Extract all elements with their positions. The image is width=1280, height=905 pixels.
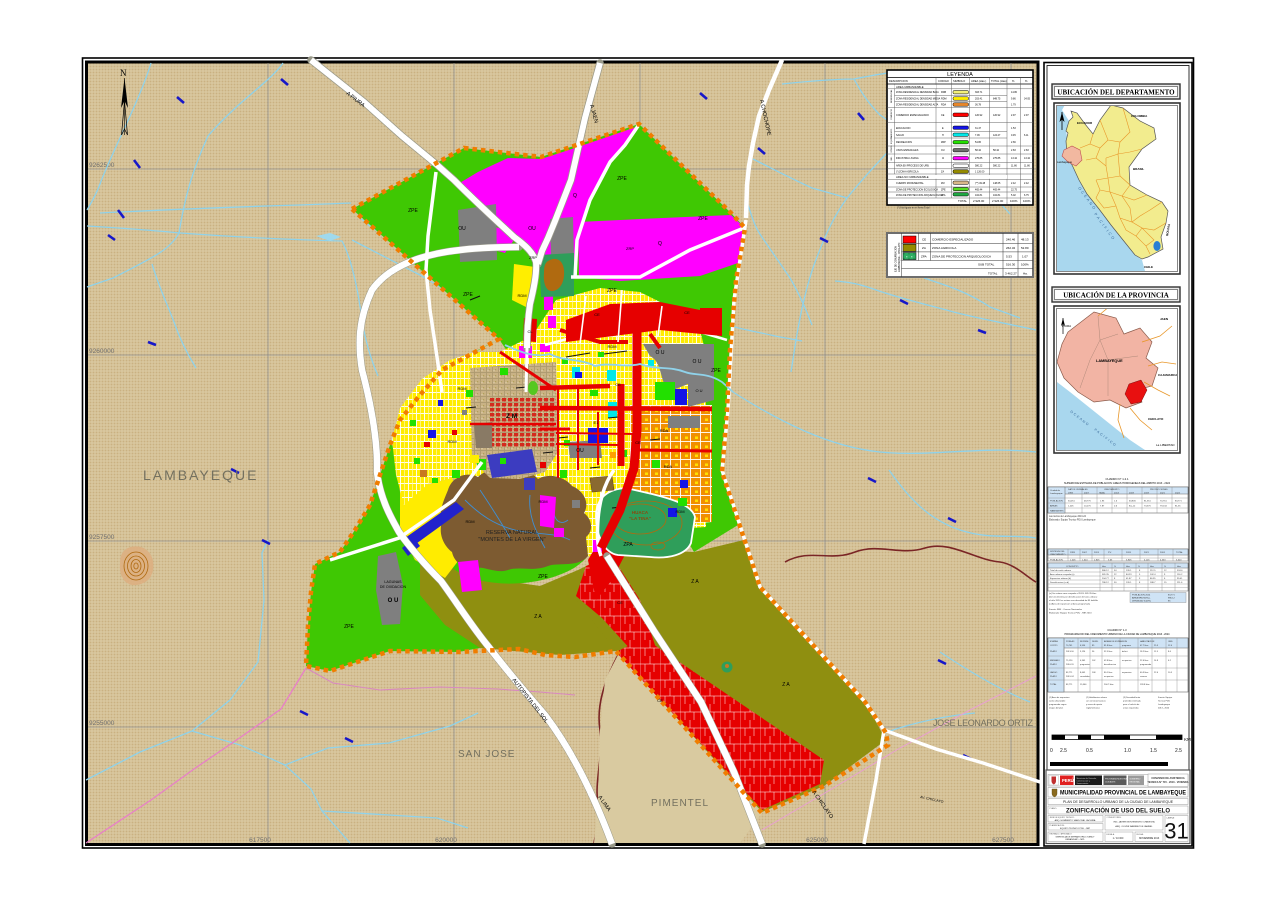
svg-text:POBLACION 2024: POBLACION 2024	[1132, 594, 1151, 597]
svg-text:1 / 10 000: 1 / 10 000	[1113, 837, 1124, 840]
svg-text:ZPE: ZPE	[617, 176, 627, 182]
svg-text:9255000: 9255000	[89, 720, 115, 727]
svg-text:CE: CE	[635, 440, 641, 445]
svg-text:Las tierras de Lambayeque 2013: Las tierras de Lambayeque 2013-24	[1049, 515, 1087, 518]
svg-text:ZPE: ZPE	[607, 288, 617, 294]
svg-text:EDUCACION: EDUCACION	[896, 127, 911, 130]
svg-text:86.35: 86.35	[1150, 578, 1156, 580]
svg-text:DENSIDAD hab/Ha: DENSIDAD hab/Ha	[1132, 600, 1152, 603]
svg-text:1.5: 1.5	[1150, 748, 1157, 754]
svg-text:8,645: 8,645	[1080, 672, 1086, 674]
svg-text:IND.: IND.	[891, 156, 893, 160]
svg-text:COMERCIO: COMERCIO	[891, 109, 893, 120]
svg-text:ZRP: ZRP	[529, 255, 537, 260]
svg-text:%: %	[1138, 566, 1140, 568]
svg-text:Elaborado: Equipo Tecnico PDU: Elaborado: Equipo Tecnico PDU Lambayeque	[1049, 519, 1096, 522]
svg-text:Saneamiento: Saneamiento	[1077, 782, 1090, 785]
svg-text:848.75: 848.75	[993, 97, 1001, 100]
svg-text:CONCEPTO: CONCEPTO	[1066, 566, 1079, 568]
svg-text:AREAS DE EXPANSION: AREAS DE EXPANSION	[1104, 640, 1128, 643]
svg-text:Lambayeque: Lambayeque	[1057, 160, 1073, 164]
svg-text:CUADRO N° 1.3: CUADRO N° 1.3	[1107, 628, 1127, 632]
svg-text:INDUSTRIA LIVIANA: INDUSTRIA LIVIANA	[896, 157, 919, 160]
svg-text:Area urbana ocupada (a): Area urbana ocupada (a)	[1050, 573, 1075, 576]
svg-text:Z A: Z A	[782, 682, 790, 688]
svg-text:ocupacion: ocupacion	[1104, 676, 1114, 678]
svg-text:ESCALA:: ESCALA:	[1107, 833, 1115, 836]
svg-text:RDA: RDA	[664, 464, 673, 469]
svg-text:CUERPO MONUMENTAL: CUERPO MONUMENTAL	[896, 182, 924, 185]
svg-text:102.81: 102.81	[975, 194, 983, 197]
svg-text:LAMBAYEQUE: LAMBAYEQUE	[143, 467, 258, 483]
svg-text:Fuente: Equipo: Fuente: Equipo	[1158, 696, 1173, 699]
svg-text:2.97: 2.97	[1024, 114, 1029, 117]
svg-text:(3) Densidad bruta: (3) Densidad bruta	[1123, 696, 1141, 699]
svg-text:SUPERFICIE ESTIMADA DE POBLACI: SUPERFICIE ESTIMADA DE POBLACION: AREAS …	[1064, 482, 1171, 485]
svg-text:SINTESIS DEL: SINTESIS DEL	[1050, 551, 1066, 553]
svg-text:OU: OU	[941, 149, 945, 152]
svg-text:PLANIFICACION:: PLANIFICACION:	[1050, 824, 1065, 827]
svg-text:E1: E1	[594, 420, 600, 425]
svg-text:programa: programa	[1122, 644, 1132, 647]
svg-text:CHICLAYO: CHICLAYO	[1148, 417, 1164, 421]
svg-text:9257500: 9257500	[89, 534, 115, 541]
svg-text:ZPE: ZPE	[408, 208, 418, 214]
svg-text:2013: 2013	[1094, 552, 1100, 554]
svg-text:1,205: 1,205	[1068, 506, 1074, 508]
svg-text:N: N	[120, 68, 127, 78]
svg-text:CE: CE	[617, 600, 623, 605]
svg-text:2019: 2019	[1144, 493, 1150, 495]
svg-text:(**) 49.48: (**) 49.48	[975, 182, 986, 185]
svg-text:expansion: expansion	[1122, 672, 1132, 674]
svg-text:CONVENIO DE ASISTENCIA: CONVENIO DE ASISTENCIA	[1151, 777, 1184, 780]
svg-text:4,563: 4,563	[1160, 560, 1166, 562]
svg-text:620000: 620000	[435, 837, 457, 844]
svg-text:5,520: 5,520	[1176, 560, 1182, 562]
svg-text:PLAZO: PLAZO	[1050, 650, 1057, 653]
svg-text:1.07: 1.07	[1022, 254, 1028, 258]
svg-text:80.1 Has: 80.1 Has	[1104, 672, 1112, 674]
svg-text:58.42: 58.42	[975, 149, 982, 152]
svg-text:USOS ESPECIALES: USOS ESPECIALES	[896, 149, 919, 152]
svg-text:Expansion urbana (b): Expansion urbana (b)	[1050, 577, 1071, 580]
svg-text:O U: O U	[695, 388, 702, 393]
svg-text:580.22: 580.22	[975, 165, 983, 168]
svg-text:CE: CE	[594, 312, 600, 317]
svg-text:75,126: 75,126	[1066, 660, 1073, 662]
svg-text:148.65: 148.65	[993, 182, 1001, 185]
svg-text:La LIBERTAD: La LIBERTAD	[1156, 443, 1175, 447]
svg-text:47.7 Has: 47.7 Has	[1140, 645, 1148, 647]
svg-text:83,771: 83,771	[1066, 672, 1073, 674]
svg-text:7.06: 7.06	[975, 134, 980, 137]
svg-text:63,805: 63,805	[1129, 501, 1136, 503]
svg-text:1.53: 1.53	[1011, 127, 1016, 130]
svg-text:PERÚ: PERÚ	[1062, 778, 1074, 783]
svg-text:5.53: 5.53	[1006, 254, 1012, 258]
svg-text:ZPE: ZPE	[344, 624, 354, 630]
svg-text:RESERVA NATURAL: RESERVA NATURAL	[486, 530, 538, 536]
svg-text:%: %	[1114, 566, 1116, 568]
svg-text:70,761: 70,761	[1066, 645, 1073, 647]
svg-text:2024: 2024	[1160, 552, 1166, 554]
svg-text:Z A: Z A	[534, 614, 542, 620]
svg-text:Q: Q	[658, 241, 662, 247]
svg-text:RDM: RDM	[457, 386, 466, 391]
svg-text:100%: 100%	[1021, 263, 1029, 267]
svg-text:84,-12: 84,-12	[1129, 506, 1136, 508]
svg-text:2019-24: 2019-24	[1066, 676, 1074, 678]
svg-text:0.5: 0.5	[1086, 748, 1093, 754]
svg-text:REGIONAL: REGIONAL	[1130, 781, 1141, 784]
svg-text:DESCRIPCION: DESCRIPCION	[889, 79, 908, 83]
svg-text:P.V.: P.V.	[1108, 552, 1112, 554]
svg-text:102.81: 102.81	[993, 194, 1001, 197]
svg-text:2007: 2007	[1084, 493, 1090, 495]
svg-text:2.5: 2.5	[1175, 748, 1182, 754]
svg-text:73,375: 73,375	[1144, 506, 1151, 508]
svg-text:2,805: 2,805	[1094, 560, 1100, 562]
svg-text:1,624: 1,624	[1082, 560, 1088, 562]
svg-text:48.13: 48.13	[1021, 238, 1029, 242]
svg-text:2019: 2019	[1126, 552, 1132, 554]
svg-text:ZPE: ZPE	[941, 188, 946, 191]
svg-text:Fuente: INEI - Censos Nacional: Fuente: INEI - Censos Nacionales	[1049, 608, 1083, 611]
svg-text:UBICACIÓN DE LA PROVINCIA: UBICACIÓN DE LA PROVINCIA	[1063, 292, 1169, 300]
svg-text:22.75: 22.75	[1011, 188, 1018, 191]
svg-text:CE: CE	[922, 238, 926, 242]
svg-text:KM: KM	[1184, 737, 1191, 742]
svg-text:programada: programada	[1140, 663, 1152, 666]
svg-text:densificacion: densificacion	[1104, 664, 1117, 666]
svg-text:ZRP: ZRP	[941, 141, 946, 144]
svg-text:etapas del plan: etapas del plan	[1049, 707, 1064, 710]
svg-text:RDM: RDM	[675, 509, 684, 514]
svg-text:42.8 Has: 42.8 Has	[1104, 660, 1112, 662]
svg-text:PROYECCIONES: PROYECCIONES	[1150, 489, 1168, 491]
svg-text:5.02: 5.02	[1011, 194, 1016, 197]
svg-text:ZONA RESIDENCIAL DENSIDAD BAJA: ZONA RESIDENCIAL DENSIDAD BAJA	[896, 91, 939, 94]
svg-text:ZPE: ZPE	[711, 368, 721, 374]
svg-text:9.86: 9.86	[1011, 97, 1016, 100]
svg-text:RDM: RDM	[517, 293, 526, 298]
svg-text:2013 - 2024: 2013 - 2024	[1158, 708, 1170, 710]
svg-text:4,365: 4,365	[1080, 660, 1086, 662]
svg-text:240.46: 240.46	[1006, 238, 1016, 242]
svg-text:suelo urbanizable: suelo urbanizable	[1049, 700, 1066, 703]
svg-text:1,006: 1,006	[1070, 560, 1076, 562]
svg-text:126.1: 126.1	[1126, 570, 1132, 572]
svg-text:3,126: 3,126	[1080, 651, 1086, 653]
svg-text:2.97: 2.97	[1011, 114, 1016, 117]
svg-text:54.86: 54.86	[975, 141, 982, 144]
svg-text:CODIGO: CODIGO	[938, 79, 949, 83]
svg-text:126.1: 126.1	[1126, 582, 1132, 584]
svg-text:2 926.00: 2 926.00	[973, 199, 985, 203]
svg-text:LEYENDA: LEYENDA	[947, 72, 973, 78]
svg-text:AREA EN PROCESO DE URB.: AREA EN PROCESO DE URB.	[896, 165, 930, 168]
svg-text:Z A: Z A	[691, 579, 699, 585]
svg-text:32.5 Has: 32.5 Has	[1104, 651, 1112, 653]
svg-text:TOTAL: TOTAL	[1176, 551, 1184, 554]
svg-text:SAN JOSE: SAN JOSE	[458, 749, 515, 760]
svg-text:AREA URBANIZABLE: AREA URBANIZABLE	[896, 85, 924, 89]
svg-text:2016-19: 2016-19	[1066, 664, 1074, 666]
svg-text:100%: 100%	[1023, 199, 1031, 203]
svg-text:COMERCIO ESPECIALIZADO: COMERCIO ESPECIALIZADO	[896, 114, 929, 117]
svg-text:SALUD: SALUD	[896, 134, 904, 137]
svg-text:124.27: 124.27	[993, 134, 1001, 137]
svg-text:ZONA RESIDENCIAL DENSIDAD MEDI: ZONA RESIDENCIAL DENSIDAD MEDIA	[896, 97, 941, 100]
svg-text:TASA: TASA	[1099, 492, 1105, 495]
svg-text:13.42: 13.42	[1024, 157, 1031, 160]
svg-text:POBLACION: POBLACION	[1050, 500, 1063, 503]
svg-text:11.86: 11.86	[1011, 165, 1017, 168]
svg-text:COMERCIO ESPECIALIZADO: COMERCIO ESPECIALIZADO	[932, 238, 974, 242]
svg-text:OU: OU	[528, 226, 536, 232]
svg-text:83,771: 83,771	[1168, 595, 1175, 597]
svg-text:Densificacion (a+b): Densificacion (a+b)	[1050, 582, 1069, 584]
svg-text:CRECIMIENTO: CRECIMIENTO	[1050, 554, 1066, 556]
svg-text:JEFE DE EQUIPO TECNICO:: JEFE DE EQUIPO TECNICO:	[1050, 817, 1076, 819]
svg-text:211.6: 211.6	[1177, 582, 1183, 584]
svg-text:BRASIL: BRASIL	[1133, 167, 1144, 171]
svg-text:AREA (Has.): AREA (Has.)	[971, 79, 986, 83]
svg-text:OBS.: OBS.	[1168, 641, 1173, 643]
svg-text:RDM: RDM	[941, 97, 946, 100]
svg-text:303.71: 303.71	[975, 91, 983, 94]
svg-text:ZPE: ZPE	[463, 292, 473, 298]
svg-text:RESIDENCIAL: RESIDENCIAL	[890, 89, 893, 103]
svg-text:COLOMBIA: COLOMBIA	[1131, 114, 1148, 118]
svg-text:Tecnico PDU: Tecnico PDU	[1158, 701, 1171, 703]
svg-text:GOBIERNO: GOBIERNO	[1130, 779, 1141, 781]
svg-text:SIMBOLO: SIMBOLO	[953, 79, 965, 83]
svg-text:RDM: RDM	[538, 499, 547, 504]
svg-text:ZONA DE PROTECCION ARQUEOLOG: ZONA DE PROTECCION ARQUEOLOGICA	[932, 254, 991, 258]
svg-text:OU: OU	[458, 226, 466, 232]
svg-text:1.79: 1.79	[1011, 104, 1016, 107]
svg-text:HABITANTES: HABITANTES	[1050, 510, 1064, 513]
svg-text:TOTAL: TOTAL	[1050, 683, 1057, 686]
svg-text:"LA TINA": "LA TINA"	[629, 516, 651, 521]
svg-text:"MONTES DE LA VIRGEN": "MONTES DE LA VIRGEN"	[478, 537, 545, 543]
svg-text:2.66: 2.66	[1011, 141, 1016, 144]
svg-text:6.75: 6.75	[1024, 194, 1029, 197]
svg-text:CHILE: CHILE	[1144, 265, 1153, 269]
svg-text:465.44: 465.44	[993, 188, 1001, 191]
svg-text:TECNICA N° 715 - 2013 - VIVIEN: TECNICA N° 715 - 2013 - VIVIENDA	[1147, 781, 1188, 784]
svg-text:UBICACIÓN DEL DEPARTAMENTO: UBICACIÓN DEL DEPARTAMENTO	[1057, 89, 1175, 97]
svg-text:O U: O U	[656, 350, 665, 356]
svg-text:CE: CE	[941, 114, 945, 117]
svg-text:O U: O U	[693, 359, 702, 365]
svg-text:OU: OU	[576, 448, 584, 454]
svg-text:ZPA: ZPA	[623, 542, 633, 548]
svg-text:2013-16: 2013-16	[1066, 651, 1074, 653]
svg-text:262.32: 262.32	[1006, 246, 1016, 250]
svg-text:RECREACION: RECREACION	[896, 141, 912, 144]
svg-text:ZRP: ZRP	[626, 246, 634, 251]
svg-text:CE: CE	[615, 382, 621, 387]
svg-text:2024: 2024	[1175, 493, 1181, 495]
svg-text:465.44: 465.44	[975, 188, 983, 191]
svg-text:CRECIMIENTO: CRECIMIENTO	[1104, 489, 1120, 491]
svg-text:LAMBAYEQUE: LAMBAYEQUE	[1096, 359, 1123, 363]
svg-text:MEDIANO: MEDIANO	[1050, 659, 1060, 662]
svg-text:6,956: 6,956	[1080, 645, 1086, 647]
svg-text:promedio estimada: promedio estimada	[1123, 700, 1142, 703]
svg-text:RDM: RDM	[447, 439, 456, 444]
svg-text:18.2 Has: 18.2 Has	[1140, 651, 1148, 653]
svg-text:9262500: 9262500	[89, 162, 115, 169]
svg-text:79,134: 79,134	[1160, 506, 1167, 508]
svg-text:2019: 2019	[1129, 493, 1135, 495]
svg-text:programado segun: programado segun	[1049, 703, 1067, 706]
svg-text:ZA: ZA	[922, 246, 926, 250]
svg-text:ARQ. HUMBERTO SANDOVAL LACHIRA: ARQ. HUMBERTO SANDOVAL LACHIRA	[1055, 819, 1096, 822]
svg-text:786.12: 786.12	[1102, 582, 1109, 584]
svg-text:POBLACION: POBLACION	[1050, 559, 1063, 562]
svg-text:EQUIPO TECNICO PDU - PAT: EQUIPO TECNICO PDU - PAT	[1060, 827, 1091, 830]
svg-text:NOVIEMBRE 2013: NOVIEMBRE 2013	[1139, 837, 1160, 840]
svg-text:areas requeridas: areas requeridas	[1123, 707, 1139, 710]
svg-text:128.8 Has: 128.8 Has	[1140, 684, 1149, 686]
svg-text:REVISADO / APROBADO:: REVISADO / APROBADO:	[1050, 833, 1073, 836]
svg-text:0: 0	[1050, 748, 1053, 754]
svg-text:ING. JAVIER MONTENEGRO CHAVEST: ING. JAVIER MONTENEGRO CHAVESTA	[1113, 821, 1155, 824]
svg-text:617500: 617500	[249, 837, 271, 844]
svg-text:AREA NO URBANIZABLE: AREA NO URBANIZABLE	[896, 175, 929, 179]
svg-text:ARQ. OLIVER RAMIREZ DE JAMBEL: ARQ. OLIVER RAMIREZ DE JAMBEL	[1115, 825, 1153, 828]
svg-text:204.7 Has: 204.7 Has	[1104, 684, 1113, 686]
svg-text:(c) Area de expansion urbana p: (c) Area de expansion urbana programada	[1049, 603, 1091, 606]
svg-text:9260000: 9260000	[89, 348, 115, 355]
svg-text:ZPA: ZPA	[941, 194, 946, 197]
svg-text:1993: 1993	[1068, 493, 1074, 495]
svg-text:1 126.00: 1 126.00	[975, 170, 985, 173]
svg-text:TOTAL (Has): TOTAL (Has)	[991, 79, 1007, 83]
svg-text:627500: 627500	[992, 837, 1014, 844]
svg-text:%: %	[1164, 566, 1166, 568]
svg-text:LAGUNAS: LAGUNAS	[384, 580, 402, 584]
svg-text:AREA BRUTA Has.: AREA BRUTA Has.	[1132, 597, 1151, 600]
svg-text:31.47: 31.47	[975, 127, 982, 130]
svg-text:TOTAL: TOTAL	[988, 272, 998, 276]
svg-text:progresiva: progresiva	[1080, 663, 1091, 666]
svg-text:580.22: 580.22	[993, 165, 1001, 168]
svg-text:2013: 2013	[1114, 493, 1120, 495]
svg-text:36.78: 36.78	[975, 104, 982, 107]
svg-text:986.12: 986.12	[1168, 598, 1175, 600]
svg-text:0.45: 0.45	[1011, 134, 1016, 137]
svg-text:OTROS: OTROS	[891, 145, 893, 153]
svg-text:Z M: Z M	[506, 413, 517, 420]
svg-text:HUACA: HUACA	[632, 510, 649, 515]
svg-text:203.41: 203.41	[975, 97, 983, 100]
svg-text:1993: 1993	[1070, 552, 1076, 554]
svg-text:Ha.: Ha.	[1023, 272, 1028, 276]
svg-text:34.05: 34.05	[1024, 97, 1031, 100]
svg-text:consolidac.: consolidac.	[1080, 676, 1091, 678]
svg-text:516.30: 516.30	[1006, 263, 1016, 267]
svg-text:(b) Crecimiento por densificac: (b) Crecimiento por densificacion del ar…	[1049, 596, 1098, 599]
svg-text:CE: CE	[657, 698, 663, 703]
svg-text:CAJAMARCA: CAJAMARCA	[1158, 373, 1178, 377]
svg-text:2.5: 2.5	[1060, 748, 1067, 754]
svg-text:O U: O U	[388, 598, 399, 604]
svg-text:ZONA DE PROTECCION ECOLOGICA: ZONA DE PROTECCION ECOLOGICA	[896, 188, 938, 191]
svg-text:34,051: 34,051	[1068, 501, 1075, 503]
svg-text:RDM: RDM	[607, 344, 616, 349]
svg-text:Lambayeque: Lambayeque	[1050, 493, 1063, 495]
svg-text:POBLAC.: POBLAC.	[1066, 640, 1075, 643]
svg-text:83,771: 83,771	[1175, 501, 1182, 503]
svg-text:3,905: 3,905	[1126, 560, 1132, 562]
svg-text:14.80: 14.80	[1011, 91, 1018, 94]
svg-text:2007: 2007	[1082, 552, 1088, 554]
svg-text:ZPE: ZPE	[538, 574, 548, 580]
svg-text:PIURA: PIURA	[1062, 324, 1071, 328]
svg-text:DE OXIDACION: DE OXIDACION	[380, 585, 407, 589]
svg-text:MUNICIPALIDAD PROVINCIAL DE LA: MUNICIPALIDAD PROVINCIAL DE LAMBAYEQUE	[1060, 790, 1186, 797]
svg-text:52.80: 52.80	[1021, 246, 1029, 250]
svg-text:DENS.: DENS.	[1092, 641, 1099, 643]
svg-text:(a) Se estima area ocupada al: (a) Se estima area ocupada al 2013: 581.…	[1049, 592, 1097, 595]
svg-text:CUADRO N° 1.2.1: CUADRO N° 1.2.1	[1105, 477, 1128, 481]
svg-text:ZONA RESIDENCIAL DENSIDAD ALTA: ZONA RESIDENCIAL DENSIDAD ALTA	[896, 104, 939, 107]
svg-text:ECUADOR: ECUADOR	[1077, 121, 1093, 125]
svg-text:TOTAL: TOTAL	[958, 199, 967, 203]
svg-text:48,775: 48,775	[1084, 501, 1091, 503]
svg-text:2.42: 2.42	[1011, 182, 1016, 185]
svg-text:ZA: ZA	[941, 170, 944, 173]
svg-text:188.7: 188.7	[1150, 582, 1156, 584]
svg-text:19,966: 19,966	[1080, 684, 1087, 686]
svg-text:116.2: 116.2	[1177, 574, 1183, 576]
svg-text:2021: 2021	[1144, 552, 1150, 554]
svg-text:3 462.27: 3 462.27	[1005, 272, 1017, 276]
svg-text:581.35: 581.35	[1102, 574, 1109, 576]
svg-text:JOSE LEONARDO ORTIZ: JOSE LEONARDO ORTIZ	[933, 718, 1034, 728]
svg-text:ZM: ZM	[941, 182, 944, 185]
svg-text:PIMENTEL: PIMENTEL	[651, 798, 709, 809]
svg-text:1.0: 1.0	[1124, 748, 1131, 754]
svg-text:PLANO:: PLANO:	[1050, 807, 1058, 810]
svg-text:FECHA:: FECHA:	[1137, 833, 1144, 836]
svg-text:RDA: RDA	[941, 104, 946, 107]
svg-text:275.85: 275.85	[975, 157, 983, 160]
svg-text:81,35: 81,35	[1175, 506, 1181, 508]
svg-text:con servicios basicos: con servicios basicos	[1086, 700, 1106, 703]
svg-text:JAEN: JAEN	[1160, 317, 1168, 321]
svg-text:120.92: 120.92	[993, 114, 1001, 117]
svg-text:GERENCIA DE INFRAESTRUCTURA Y: GERENCIA DE INFRAESTRUCTURA Y	[1056, 835, 1096, 838]
svg-text:11.86: 11.86	[1024, 165, 1030, 168]
svg-text:para el calculo de: para el calculo de	[1123, 703, 1140, 706]
svg-text:reserva: reserva	[1140, 675, 1148, 678]
svg-text:RDA: RDA	[660, 428, 669, 433]
svg-text:ZONIFICACIÓN DE USO DEL SU: ZONIFICACIÓN DE USO DEL SUELO	[1066, 807, 1170, 815]
svg-text:2.83: 2.83	[1024, 149, 1029, 152]
svg-text:AREAS: AREAS	[1050, 505, 1058, 508]
svg-text:2.83: 2.83	[1011, 149, 1016, 152]
svg-text:4,126: 4,126	[1144, 560, 1150, 562]
svg-text:Q: Q	[573, 193, 577, 199]
svg-text:ETAPAS: ETAPAS	[1050, 640, 1059, 643]
svg-text:HABILITACION: HABILITACION	[1140, 640, 1155, 643]
